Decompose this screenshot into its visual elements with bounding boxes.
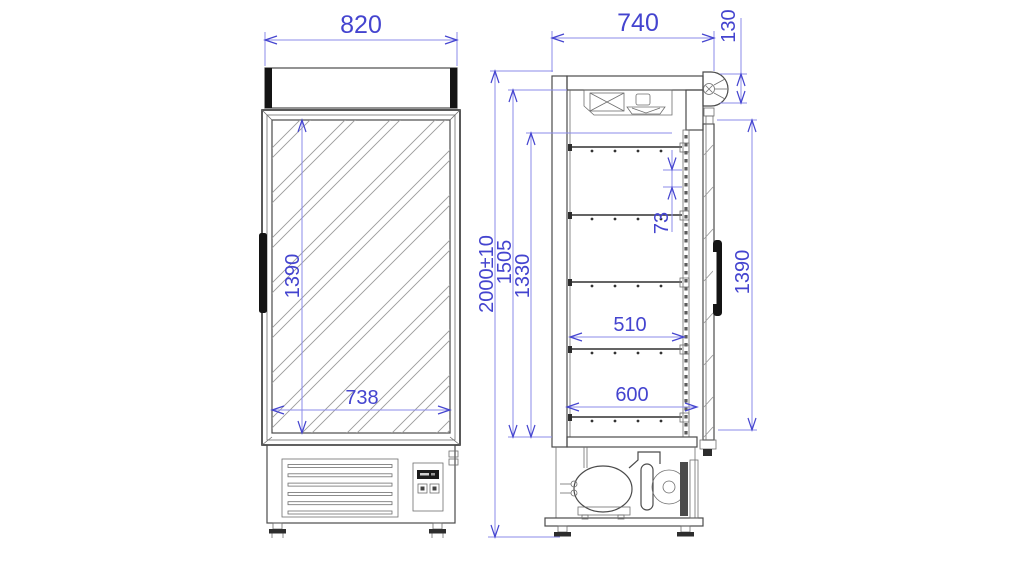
- adjustable-foot-front-right: [429, 523, 446, 538]
- dim-shelf-pitch-label: 73: [651, 212, 673, 234]
- adjustable-foot-side-left: [554, 526, 571, 537]
- door-section-ticks: [704, 145, 713, 437]
- door-side: [703, 124, 722, 440]
- cabinet-dimension-drawing: 820 1390 738: [0, 0, 1024, 567]
- dim-clear-height-label: 1330: [512, 254, 534, 299]
- front-dimensions: 820 1390 738: [265, 11, 457, 433]
- shelf-rail: [683, 130, 689, 437]
- door-top-pivot: [704, 108, 714, 116]
- louver-slats: [288, 465, 392, 515]
- side-view: 740 130 2000±10 1505 1330: [476, 9, 757, 537]
- fan-motor-icon: [636, 94, 650, 105]
- dim-door-closer-height-label: 130: [718, 9, 740, 42]
- technical-drawing-page: 820 1390 738: [0, 0, 1024, 567]
- shelf-bottom: [568, 413, 689, 422]
- front-header-section: [686, 90, 703, 130]
- back-wall-section: [552, 76, 567, 447]
- shelf-3: [568, 278, 689, 287]
- door-closer: [703, 72, 728, 124]
- shelf-1: [568, 143, 689, 152]
- door-bottom-hinge: [700, 440, 716, 456]
- dim-glass-width-label: 738: [345, 387, 378, 409]
- dim-door-height-label: 1390: [732, 250, 754, 295]
- cabinet-floor-section: [567, 437, 697, 447]
- canopy-end-cap-right: [450, 68, 457, 108]
- canopy-end-cap-left: [265, 68, 272, 108]
- adjustable-foot-side-right: [677, 526, 694, 537]
- door-handle-front: [259, 233, 267, 313]
- drier-filter: [641, 464, 653, 510]
- dim-shelf-depth-label: 510: [613, 314, 646, 336]
- canopy-panel: [265, 68, 457, 108]
- adjustable-foot-front-left: [269, 523, 286, 538]
- top-wall-section: [567, 76, 703, 90]
- door-hinge-front: [449, 451, 458, 465]
- shelf-4: [568, 345, 689, 354]
- dim-overall-width-label: 820: [340, 11, 382, 39]
- dim-glass-height-label: 1390: [282, 254, 304, 299]
- evaporator-unit: [584, 90, 672, 115]
- compressor: [560, 466, 632, 519]
- glass-reflection-lines: [0, 90, 790, 460]
- control-panel: [413, 463, 443, 511]
- dim-bottom-shelf-depth-label: 600: [615, 384, 648, 406]
- refrigerant-pipe: [629, 452, 660, 468]
- condenser-coil: [680, 462, 688, 516]
- machine-compartment-side: [545, 447, 703, 537]
- dim-overall-depth-label: 740: [617, 9, 659, 37]
- shelves: [568, 143, 689, 422]
